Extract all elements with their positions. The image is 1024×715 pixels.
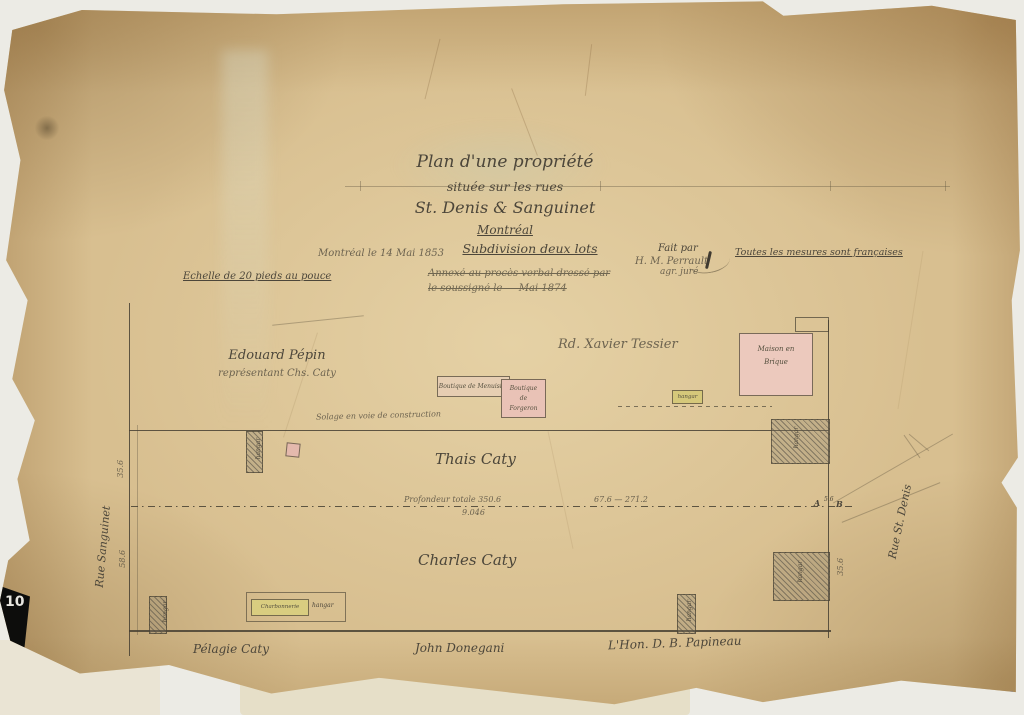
owner-upper-left-sub: représentant Chs. Caty <box>192 368 362 380</box>
plan-title-city: Montréal <box>425 223 585 237</box>
plan-title-line3: St. Denis & Sanguinet <box>395 198 615 217</box>
small-pink-structure <box>285 442 300 457</box>
crease-line <box>548 431 574 549</box>
plan-paper: Plan d'une propriété située sur les rues… <box>0 0 1024 715</box>
carpenter-shop-label: Boutique de Menuisier <box>438 383 509 390</box>
pencil-tick <box>360 181 361 191</box>
owner-south-center: John Donegani <box>415 641 504 655</box>
owner-lower: Charles Caty <box>418 551 516 569</box>
street-name-west: Rue Sanguinet <box>92 491 115 602</box>
blacksmith-shop-building: Boutique de Forgeron <box>501 379 546 418</box>
page-corner-number: 10 <box>5 594 24 610</box>
point-b-label: B <box>836 500 843 510</box>
subdivision-note: Subdivision deux lots <box>440 241 620 256</box>
corner-stamp-number: 811 <box>984 688 1019 706</box>
outbuilding-label: hangar <box>686 600 693 622</box>
owner-south-right: L'Hon. D. B. Papineau <box>608 634 742 653</box>
owner-upper-right: Rd. Xavier Tessier <box>558 337 678 353</box>
outbuilding-label: hangar <box>797 561 804 583</box>
depth-sub-label: 9.046 <box>462 508 485 518</box>
outbuilding-label: hangar <box>793 427 800 449</box>
west-dimension-lower: 58.6 <box>118 550 128 568</box>
pencil-tick <box>945 181 946 191</box>
west-boundary-line <box>129 303 130 656</box>
west-inner-line <box>137 425 138 635</box>
owner-south-left: Pélagie Caty <box>193 642 269 656</box>
carpenter-shop-building: Boutique de Menuisier <box>437 376 510 397</box>
blacksmith-shop-label: Boutique de Forgeron <box>502 384 545 415</box>
struck-annotation-line1: Annexé au procès verbal dressé par <box>428 268 610 280</box>
fait-par-label: Fait par <box>658 243 698 255</box>
owner-middle: Thais Caty <box>435 450 516 468</box>
shed-label: hangar <box>673 394 702 400</box>
depth-total-label: Profondeur totale 350.6 <box>404 495 501 505</box>
pencil-diagonal <box>833 434 953 504</box>
pencil-tick <box>830 181 831 191</box>
pencil-tick <box>600 181 601 191</box>
mid-division-line <box>129 430 829 431</box>
ink-stain <box>34 116 60 140</box>
pencil-mark <box>904 435 921 459</box>
coal-shed-label: Charbonnerie <box>252 604 308 610</box>
street-name-east: Rue St. Denis <box>882 466 918 576</box>
pencil-diagonal <box>272 315 364 326</box>
crease-line <box>425 39 441 99</box>
crease-line <box>511 88 538 156</box>
brick-house-label: Maison en Brique <box>740 343 812 368</box>
date-note: Montréal le 14 Mai 1853 <box>318 248 444 260</box>
brick-house-building: Maison en Brique <box>739 333 813 396</box>
scanned-plan-scene: Plan d'une propriété située sur les rues… <box>0 0 1024 715</box>
outbuilding-hatched <box>771 419 830 464</box>
pencil-mark <box>909 434 930 451</box>
plan-title-line1: Plan d'une propriété <box>395 152 615 172</box>
owner-upper-left: Edouard Pépin <box>197 348 357 364</box>
outbuilding-label: hangar <box>162 601 169 623</box>
crease-line <box>897 251 923 409</box>
north-dashed-line <box>618 406 772 407</box>
coal-shed-building: Charbonnerie <box>251 599 309 616</box>
point-a-label: A <box>814 499 820 509</box>
shed-building-yellow: hangar <box>672 390 703 404</box>
point-ab-fraction: 5.6 <box>824 496 834 503</box>
scale-note: Echelle de 20 pieds au pouce <box>183 271 331 283</box>
crease-line <box>585 44 592 96</box>
center-dashdot-line <box>131 506 853 507</box>
pencil-guide-line <box>345 186 950 187</box>
shed-label-bottom: hangar <box>312 602 334 609</box>
measures-note: Toutes les mesures sont françaises <box>735 247 903 258</box>
east-dimension-lower: 35.6 <box>836 558 846 576</box>
west-dimension-upper: 35.6 <box>116 460 126 478</box>
struck-annotation-line2: le soussigné le — Mai 1874 <box>428 283 567 295</box>
segment-dimension-label: 67.6 — 271.2 <box>594 495 648 505</box>
south-boundary-line <box>129 630 831 632</box>
construction-note: Solage en voie de construction <box>316 409 441 422</box>
outbuilding-label: hangar <box>255 438 262 460</box>
northeast-step-outline <box>795 317 829 332</box>
